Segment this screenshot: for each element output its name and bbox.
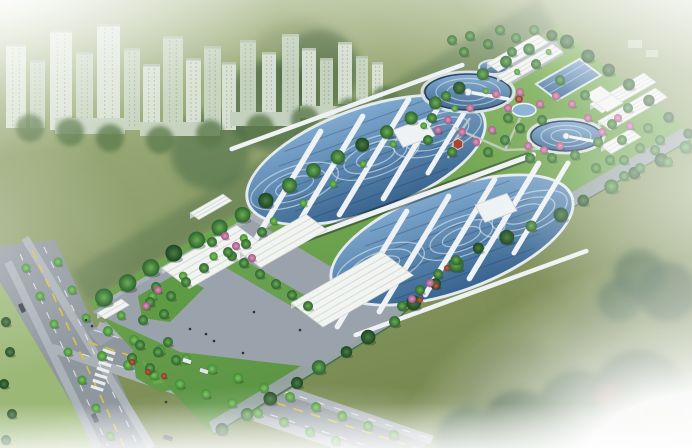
tower-roof — [240, 40, 256, 43]
dark-tree — [643, 95, 654, 106]
person — [253, 311, 256, 314]
dark-tree — [291, 377, 303, 389]
tree — [138, 315, 148, 325]
dark-tree — [355, 138, 369, 152]
tree — [495, 25, 505, 35]
street-tree — [329, 180, 337, 188]
tree — [593, 137, 603, 147]
tree — [604, 179, 618, 193]
street-tree — [259, 383, 269, 393]
tree — [441, 91, 451, 101]
city-tower — [338, 42, 352, 104]
city-tower — [143, 64, 160, 130]
tree — [163, 337, 173, 347]
tree — [511, 33, 521, 43]
tree — [171, 355, 181, 365]
tree — [515, 123, 525, 133]
street-tree — [209, 252, 217, 260]
tree — [503, 113, 513, 123]
tree — [447, 35, 457, 45]
tree — [303, 301, 313, 311]
street-tree — [227, 398, 237, 408]
flowering-tree — [614, 114, 622, 122]
tower-roof — [97, 24, 120, 27]
flowering-tree — [536, 100, 544, 108]
tree — [679, 141, 692, 154]
city-tower — [163, 36, 183, 130]
city-treeline — [96, 124, 124, 152]
street-tree — [97, 351, 107, 361]
tree — [605, 155, 615, 165]
red-shrub — [417, 297, 423, 303]
clarifier-hub — [563, 133, 569, 139]
tree — [465, 31, 475, 41]
dark-tree — [499, 230, 514, 245]
rendering-svg — [0, 0, 692, 448]
tree — [331, 150, 345, 164]
street-tree — [175, 379, 185, 389]
tower-roof — [338, 42, 352, 45]
dark-tree — [473, 242, 484, 253]
street-tree — [331, 436, 341, 446]
street-tree — [68, 286, 77, 295]
street-tree — [359, 160, 366, 167]
tree — [241, 239, 251, 249]
tree — [650, 145, 660, 155]
tree — [223, 247, 233, 257]
city-tower — [50, 30, 72, 130]
flowering-tree — [458, 128, 466, 136]
person — [205, 333, 208, 336]
tree — [235, 207, 251, 223]
flowering-tree — [248, 254, 256, 262]
dark-tree — [263, 392, 277, 406]
tower-roof — [186, 58, 201, 61]
tree — [483, 39, 493, 49]
tree — [255, 269, 265, 279]
street-tree — [64, 348, 73, 357]
street-tree — [483, 88, 489, 94]
tower-roof — [320, 58, 333, 61]
tree — [135, 340, 145, 350]
tree — [287, 290, 297, 300]
tree — [523, 43, 534, 54]
red-shrub — [444, 265, 450, 271]
flowering-tree — [568, 100, 576, 108]
dark-tree — [341, 346, 353, 358]
tree — [500, 135, 510, 145]
flowering-tree — [142, 302, 150, 310]
tree — [405, 111, 418, 124]
street-tree — [22, 264, 31, 273]
city-tower — [6, 44, 26, 128]
street-tree — [117, 311, 126, 320]
person — [213, 340, 216, 343]
person — [85, 319, 88, 322]
tree — [619, 155, 629, 165]
flowering-tree — [472, 138, 480, 146]
flowering-tree — [434, 126, 442, 134]
city-tower — [262, 52, 276, 114]
flowering-tree — [516, 88, 524, 96]
city-treeline — [16, 114, 44, 142]
street-tree — [253, 408, 263, 418]
flowering-tree — [584, 114, 592, 122]
street-tree — [270, 217, 278, 225]
dark-tree — [453, 82, 465, 94]
dark-tree — [258, 193, 273, 208]
dark-tree — [1, 317, 11, 327]
dark-tree — [554, 207, 569, 222]
tree — [623, 103, 633, 113]
tree — [282, 178, 297, 193]
tree — [451, 255, 461, 265]
street-tree — [305, 427, 315, 437]
city-treeline — [146, 126, 174, 154]
tree — [159, 309, 169, 319]
tree — [312, 360, 326, 374]
flowering-tree — [488, 126, 496, 134]
flowering-tree — [408, 295, 416, 303]
tower-roof — [143, 64, 160, 67]
street-tree — [103, 326, 113, 336]
person — [165, 401, 168, 404]
street-tree — [420, 122, 427, 129]
tower-roof — [30, 60, 45, 63]
person — [189, 328, 192, 331]
dark-tree — [7, 409, 17, 419]
street-tree — [363, 421, 373, 431]
tree — [483, 147, 493, 157]
tree — [188, 232, 205, 249]
flowering-tree — [504, 104, 512, 112]
city-treeline — [196, 120, 224, 148]
tree — [199, 263, 209, 273]
tower-roof — [262, 52, 276, 55]
tower-roof — [282, 34, 299, 37]
street-tree — [389, 430, 399, 440]
city-tower — [282, 34, 299, 114]
tower-roof — [124, 48, 140, 51]
flowering-tree — [444, 116, 452, 124]
tree — [635, 163, 645, 173]
street-tree — [279, 417, 289, 427]
city-tower — [186, 58, 201, 130]
dark-tree — [546, 30, 557, 41]
person — [91, 325, 94, 328]
tree — [547, 153, 557, 163]
tower-roof — [222, 62, 236, 65]
flowering-tree — [540, 146, 548, 154]
tree — [239, 258, 249, 268]
tree — [423, 135, 433, 145]
street-tree — [36, 292, 45, 301]
flowering-tree — [524, 142, 532, 150]
street-tree — [54, 258, 63, 267]
tree — [591, 163, 601, 173]
dark-tree — [581, 49, 594, 62]
flowering-tree — [221, 232, 229, 240]
red-shrub — [129, 359, 135, 365]
tree — [427, 113, 437, 123]
flowering-tree — [232, 242, 240, 250]
tree — [119, 274, 137, 292]
tower-roof — [6, 44, 26, 47]
tree — [153, 347, 163, 357]
street-tree — [106, 432, 115, 441]
person — [242, 352, 245, 355]
tree — [526, 220, 537, 231]
street-tree — [78, 376, 87, 385]
dark-tree — [623, 79, 635, 91]
tree — [537, 115, 547, 125]
tree — [95, 289, 113, 307]
tree — [166, 291, 176, 301]
street-tree — [300, 199, 308, 207]
city-tower — [97, 24, 120, 130]
street-tree — [50, 320, 59, 329]
dark-tree — [560, 35, 574, 49]
tree — [271, 279, 281, 289]
tower-roof — [372, 62, 383, 65]
street-tree — [451, 105, 458, 112]
dark-tree — [602, 64, 615, 77]
tree — [207, 237, 217, 247]
tree — [433, 269, 443, 279]
city-tower — [320, 58, 333, 110]
city-tower — [240, 40, 256, 116]
street-tree — [201, 389, 211, 399]
street-tree — [285, 392, 295, 402]
tower-roof — [204, 46, 221, 49]
street-tree — [233, 373, 243, 383]
tree — [389, 316, 400, 327]
red-shrub — [145, 369, 151, 375]
tree — [655, 135, 665, 145]
dark-tree — [663, 112, 674, 123]
tree — [380, 125, 394, 139]
tower-roof — [302, 48, 316, 51]
tree — [663, 157, 673, 167]
tree — [500, 56, 512, 68]
flowering-tree — [552, 92, 560, 100]
flowering-tree — [598, 128, 606, 136]
small-round-pond-2 — [512, 104, 536, 117]
tree — [580, 90, 590, 100]
city-tower — [302, 48, 316, 112]
flowering-tree — [466, 104, 474, 112]
flowering-tree — [154, 286, 162, 294]
dark-tree — [361, 330, 376, 345]
tree — [257, 227, 267, 237]
tree — [525, 153, 535, 163]
street-tree — [514, 69, 520, 75]
tree — [531, 59, 541, 69]
street-tree — [311, 402, 321, 412]
tree — [643, 123, 653, 133]
tree — [619, 171, 629, 181]
flowering-tree — [426, 279, 434, 287]
red-shrub — [433, 283, 439, 289]
tree — [507, 47, 517, 57]
dark-tree — [1, 435, 11, 445]
flowering-tree — [492, 90, 500, 98]
tree — [447, 147, 457, 157]
dark-tree — [216, 423, 229, 436]
tree — [477, 68, 489, 80]
dark-tree — [5, 347, 15, 357]
tree — [397, 301, 407, 311]
tree — [635, 143, 645, 153]
tree — [570, 150, 580, 160]
tree — [617, 135, 627, 145]
street-tree — [546, 49, 552, 55]
scene-canvas — [0, 0, 692, 448]
tower-roof — [163, 36, 183, 39]
city-tower — [204, 46, 221, 130]
flowering-tree — [556, 142, 564, 150]
tower-roof — [76, 52, 93, 55]
tree — [181, 277, 191, 287]
street-tree — [92, 404, 101, 413]
tree — [306, 163, 321, 178]
tower-roof — [356, 56, 368, 59]
tree — [555, 75, 565, 85]
street-tree — [390, 141, 397, 148]
tree — [241, 408, 254, 421]
city-tower — [356, 56, 368, 102]
city-tower — [124, 48, 140, 130]
street-tree — [337, 411, 347, 421]
red-shrub — [161, 373, 167, 379]
tree — [429, 96, 442, 109]
flowering-tree — [626, 122, 634, 130]
person — [299, 329, 302, 332]
city-treeline — [56, 118, 84, 146]
tower-roof — [50, 30, 72, 33]
tree — [415, 285, 425, 295]
tree — [529, 25, 539, 35]
tree — [459, 47, 469, 57]
dark-tree — [165, 245, 182, 262]
tree — [142, 259, 159, 276]
dark-tree — [577, 195, 589, 207]
